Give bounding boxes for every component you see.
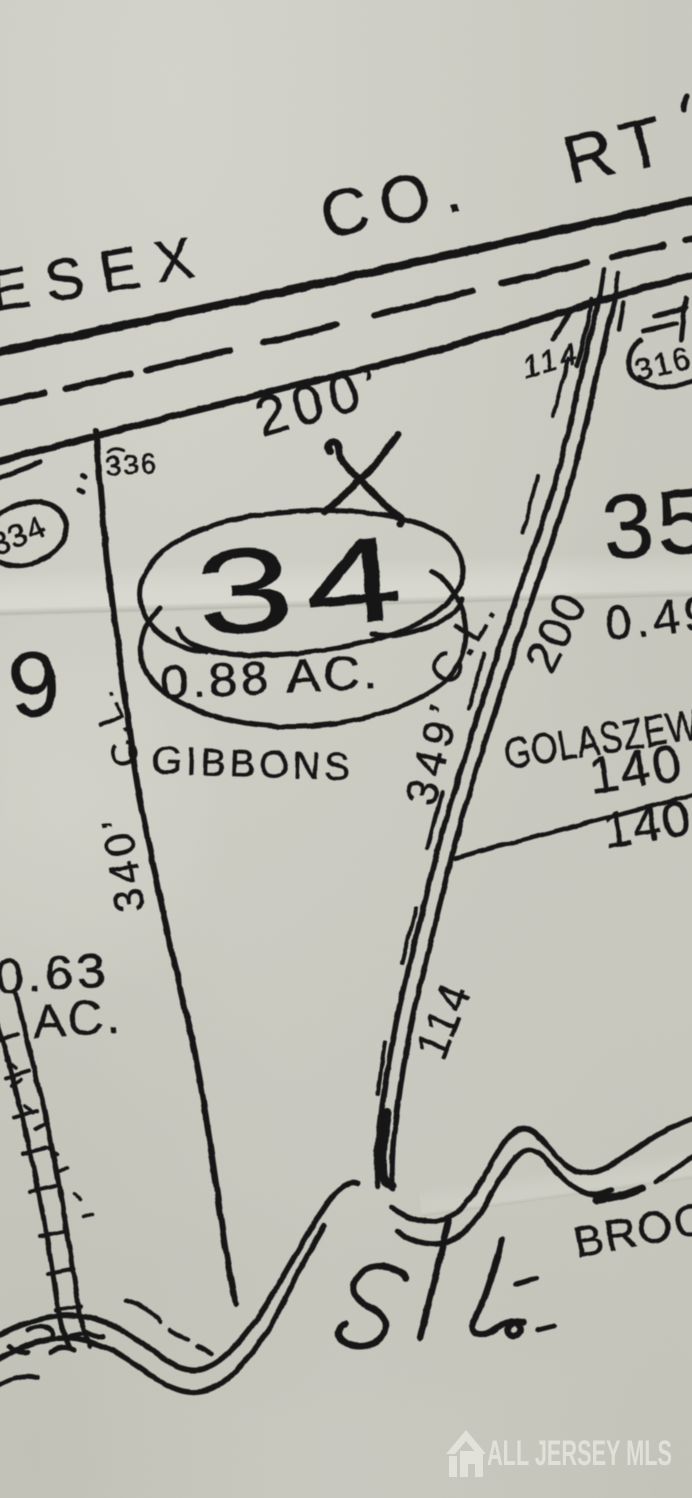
svg-text:35: 35	[598, 469, 692, 580]
svg-text:ALL JERSEY MLS: ALL JERSEY MLS	[487, 1434, 672, 1473]
svg-text:GIBBONS: GIBBONS	[152, 740, 354, 789]
svg-text:0.49: 0.49	[603, 587, 692, 651]
svg-text:AC.: AC.	[31, 990, 123, 1049]
svg-text:9: 9	[3, 631, 65, 738]
svg-text:336: 336	[104, 447, 159, 482]
